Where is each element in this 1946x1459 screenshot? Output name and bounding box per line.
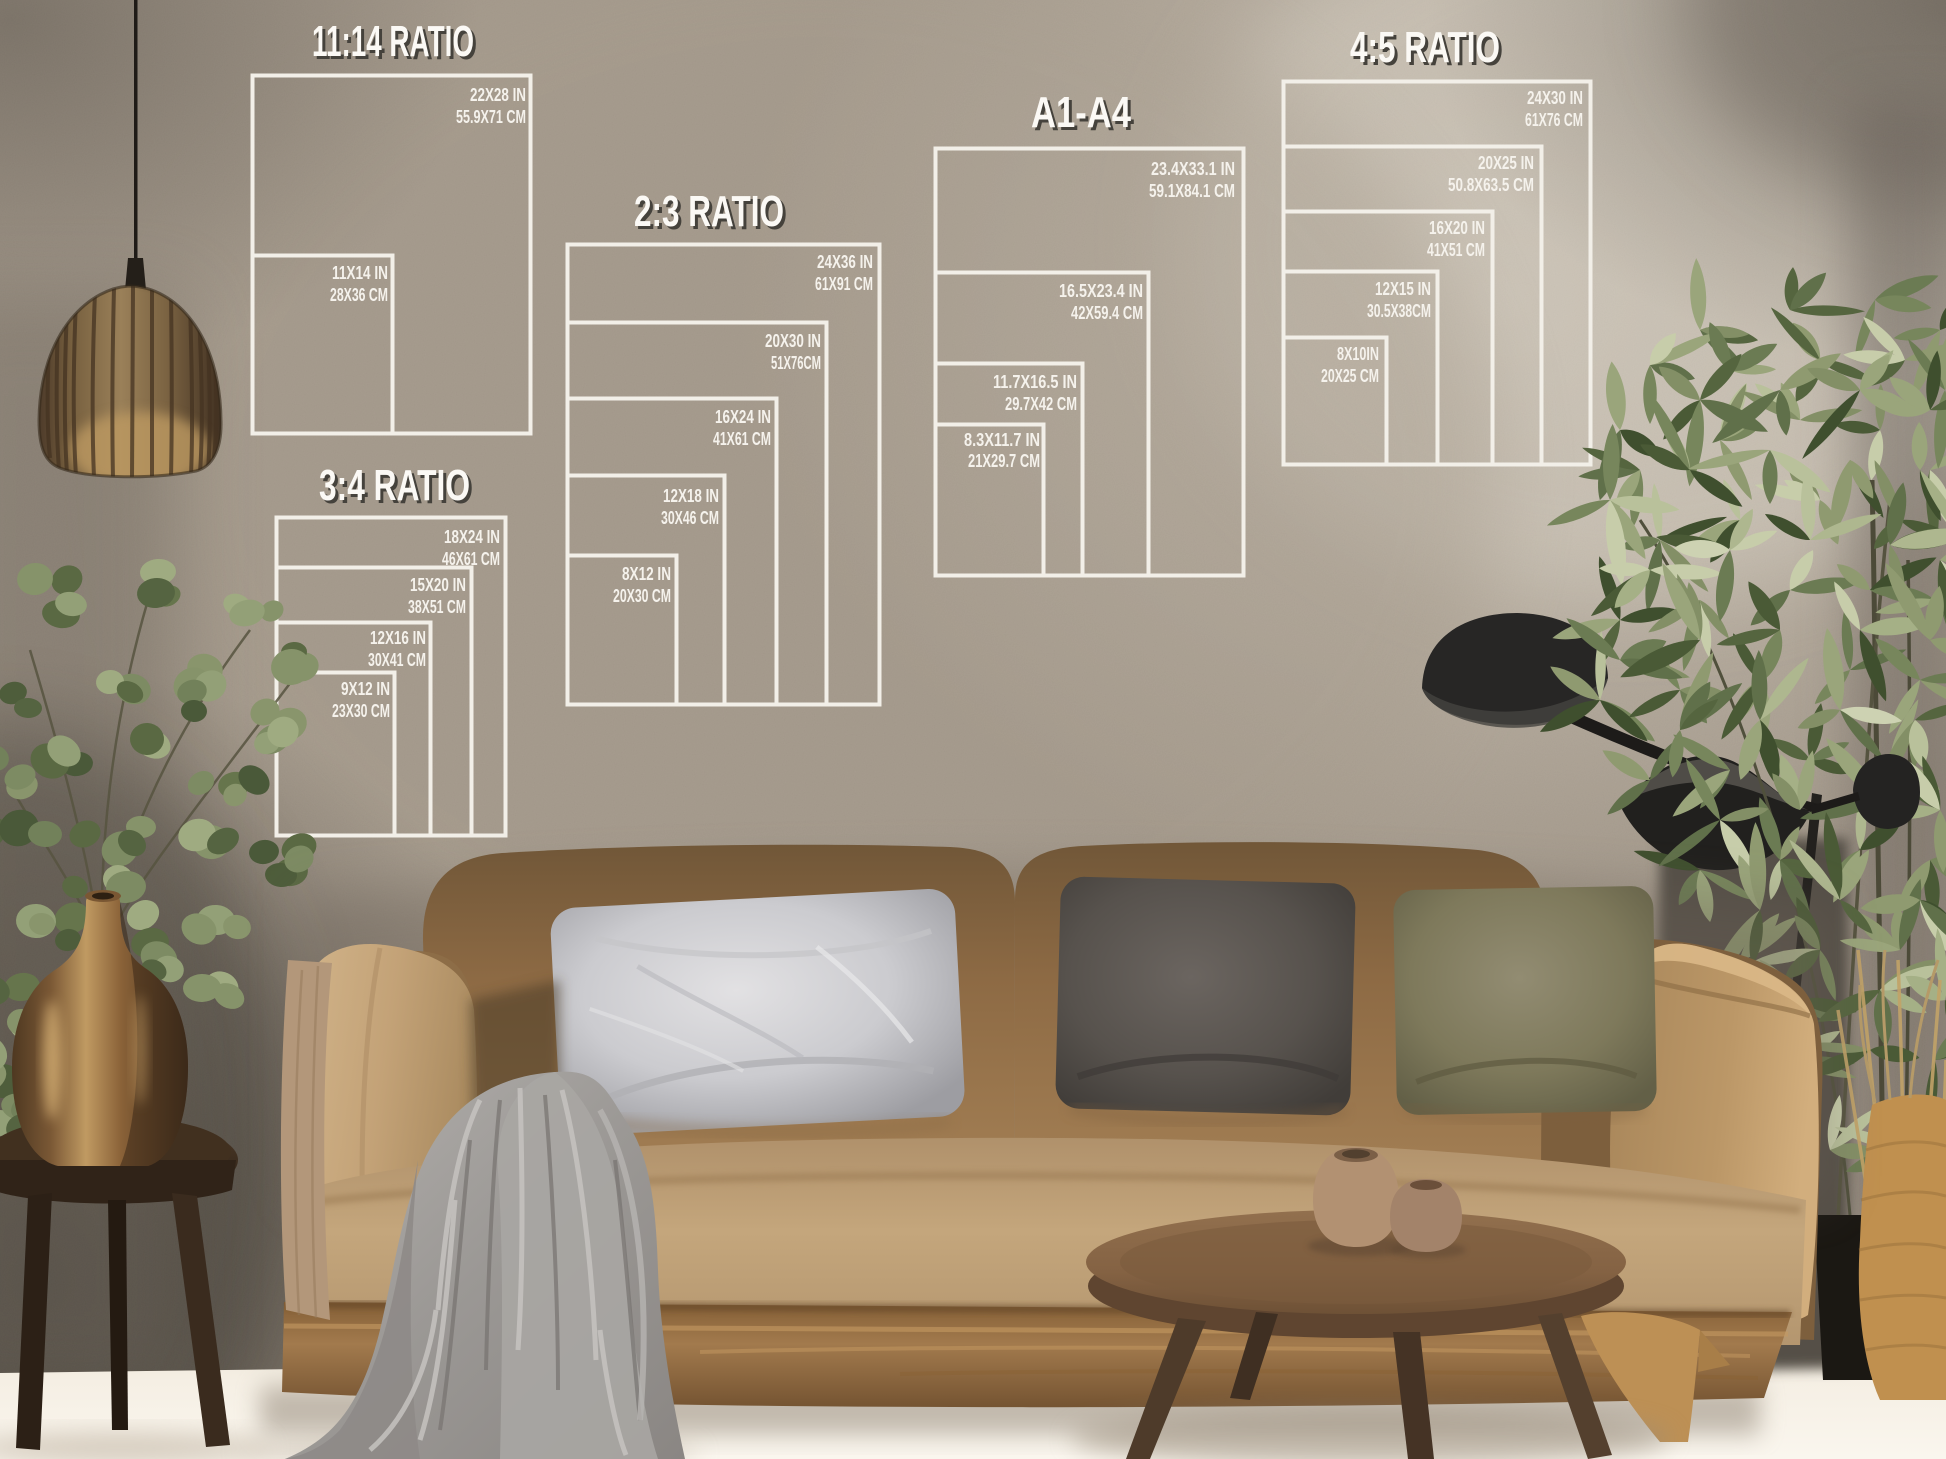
- svg-text:20X25 IN: 20X25 IN: [1478, 152, 1534, 173]
- svg-text:38X51 CM: 38X51 CM: [408, 596, 466, 617]
- svg-text:55.9X71 CM: 55.9X71 CM: [456, 106, 526, 127]
- svg-text:2:3 RATIO: 2:3 RATIO: [634, 187, 784, 236]
- svg-text:A1-A4: A1-A4: [1031, 88, 1131, 137]
- svg-text:22X28 IN: 22X28 IN: [470, 84, 526, 105]
- svg-text:23.4X33.1 IN: 23.4X33.1 IN: [1151, 158, 1235, 179]
- svg-text:11X14 IN: 11X14 IN: [332, 262, 388, 283]
- svg-text:20X30 CM: 20X30 CM: [613, 585, 671, 606]
- svg-text:59.1X84.1 CM: 59.1X84.1 CM: [1149, 180, 1235, 201]
- svg-text:16.5X23.4 IN: 16.5X23.4 IN: [1059, 280, 1143, 301]
- svg-text:15X20 IN: 15X20 IN: [410, 574, 466, 595]
- svg-text:24X36 IN: 24X36 IN: [817, 251, 873, 272]
- svg-text:16X24 IN: 16X24 IN: [715, 406, 771, 427]
- svg-text:24X30 IN: 24X30 IN: [1527, 87, 1583, 108]
- svg-text:29.7X42 CM: 29.7X42 CM: [1005, 393, 1077, 414]
- svg-text:12X18 IN: 12X18 IN: [663, 485, 719, 506]
- svg-text:50.8X63.5 CM: 50.8X63.5 CM: [1448, 174, 1534, 195]
- svg-text:18X24 IN: 18X24 IN: [444, 526, 500, 547]
- svg-text:51X76CM: 51X76CM: [771, 352, 821, 373]
- svg-text:28X36 CM: 28X36 CM: [330, 284, 388, 305]
- svg-text:23X30 CM: 23X30 CM: [332, 700, 390, 721]
- svg-text:11.7X16.5 IN: 11.7X16.5 IN: [993, 371, 1077, 392]
- svg-text:12X15 IN: 12X15 IN: [1375, 278, 1431, 299]
- svg-text:30X41 CM: 30X41 CM: [368, 649, 426, 670]
- svg-text:61X91 CM: 61X91 CM: [815, 273, 873, 294]
- svg-text:12X16 IN: 12X16 IN: [370, 627, 426, 648]
- svg-text:9X12 IN: 9X12 IN: [341, 678, 390, 699]
- svg-text:8X12 IN: 8X12 IN: [622, 563, 671, 584]
- svg-text:11:14 RATIO: 11:14 RATIO: [312, 17, 474, 66]
- svg-text:16X20 IN: 16X20 IN: [1429, 217, 1485, 238]
- svg-text:21X29.7 CM: 21X29.7 CM: [968, 450, 1040, 471]
- svg-text:41X51 CM: 41X51 CM: [1427, 239, 1485, 260]
- svg-text:3:4 RATIO: 3:4 RATIO: [319, 461, 470, 510]
- svg-text:20X25 CM: 20X25 CM: [1321, 365, 1379, 386]
- svg-text:61X76 CM: 61X76 CM: [1525, 109, 1583, 130]
- svg-text:8X10IN: 8X10IN: [1337, 343, 1379, 364]
- svg-text:20X30 IN: 20X30 IN: [765, 330, 821, 351]
- svg-text:42X59.4 CM: 42X59.4 CM: [1071, 302, 1143, 323]
- svg-text:30.5X38CM: 30.5X38CM: [1367, 300, 1431, 321]
- svg-text:30X46 CM: 30X46 CM: [661, 507, 719, 528]
- svg-text:8.3X11.7 IN: 8.3X11.7 IN: [964, 429, 1040, 450]
- svg-text:4:5 RATIO: 4:5 RATIO: [1350, 23, 1500, 72]
- svg-text:41X61 CM: 41X61 CM: [713, 428, 771, 449]
